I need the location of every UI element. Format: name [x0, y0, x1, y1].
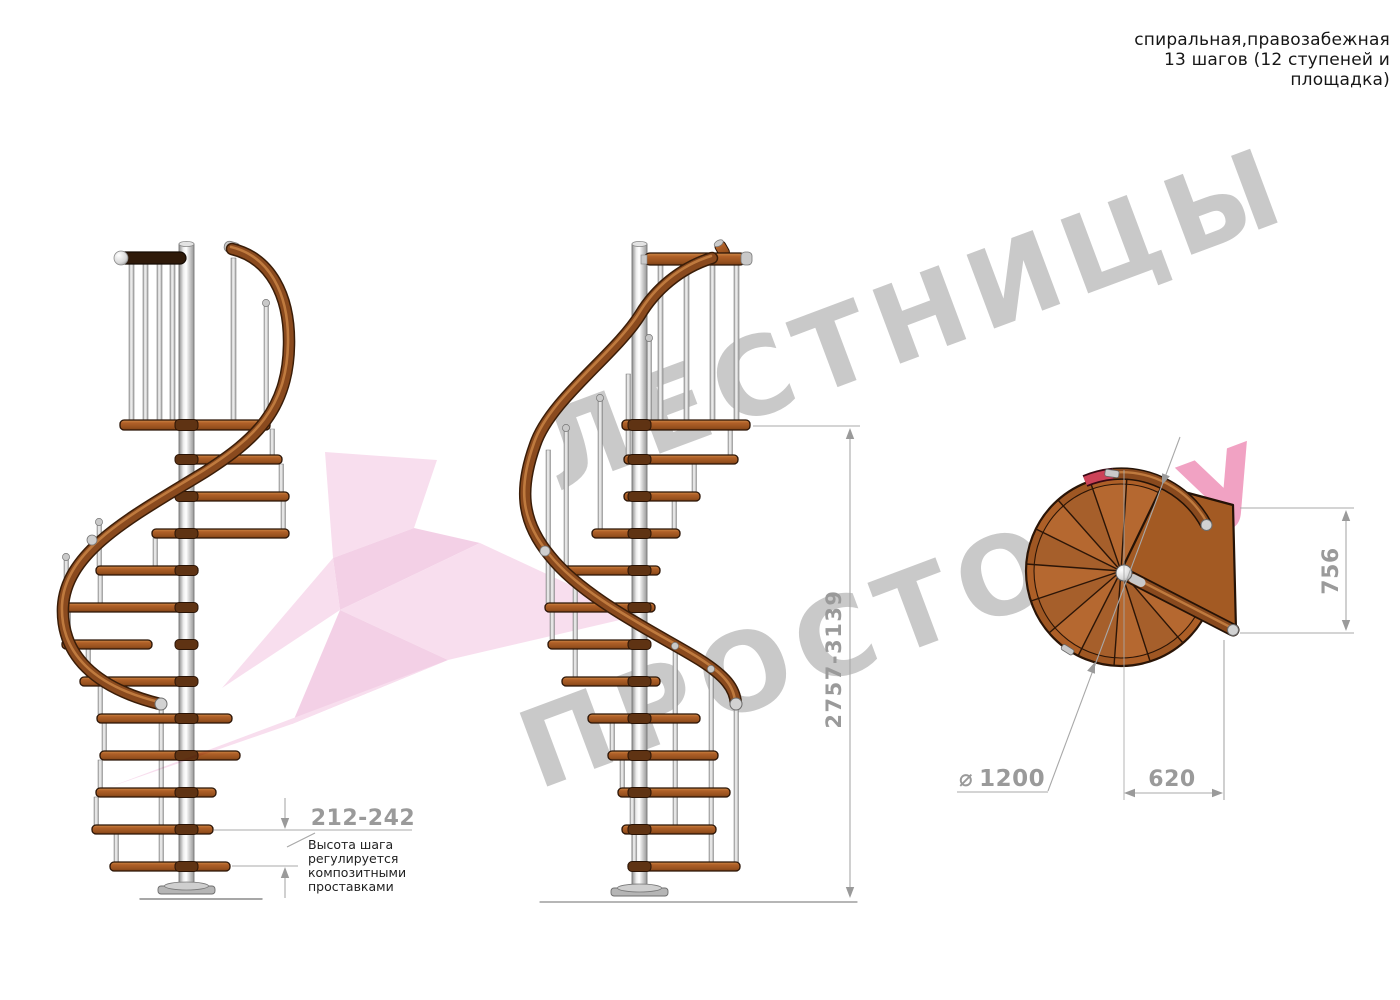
- note-line-4: проставками: [308, 879, 394, 894]
- title-line-2: 13 шагов (12 ступеней и: [1134, 50, 1390, 70]
- title-line-3: площадка): [1134, 70, 1390, 90]
- watermark-text: ЛЕСТНИЦЫ ПРОСТО.РУ: [503, 123, 1305, 814]
- diameter-symbol: ⌀: [959, 766, 973, 792]
- dim-total-height-value: 2757-3139: [822, 589, 846, 728]
- dim-platform-width-value: 620: [1148, 767, 1195, 792]
- note-line-1: Высота шага: [308, 837, 393, 852]
- rail-ball-finial: [114, 251, 128, 265]
- title-line-1: спиральная,правозабежная: [1134, 30, 1390, 50]
- step-height-note: Высота шага регулируется композитными пр…: [308, 837, 406, 894]
- title-annotation: спиральная,правозабежная 13 шагов (12 ст…: [1134, 30, 1390, 90]
- note-line-2: регулируется: [308, 851, 398, 866]
- side-view-left: [62, 240, 289, 899]
- dim-step-height: 212-242 Высота шага регулируется компози…: [214, 798, 415, 898]
- note-line-3: композитными: [308, 865, 406, 880]
- dim-diameter-value: ⌀1200: [959, 766, 1045, 792]
- plan-view: [1026, 469, 1239, 666]
- dim-step-height-value: 212-242: [311, 806, 415, 831]
- drawing-page: ЛЕСТНИЦЫ ПРОСТО.РУ: [0, 0, 1400, 1000]
- diameter-number: 1200: [979, 766, 1045, 792]
- staircase-drawing: ЛЕСТНИЦЫ ПРОСТО.РУ: [0, 0, 1400, 1000]
- dim-platform-depth-value: 756: [1319, 547, 1344, 594]
- top-balustrade-left: [114, 240, 241, 420]
- handrail-end-ferrule-middle: [730, 698, 742, 710]
- handrail-end-ferrule-left: [155, 698, 167, 710]
